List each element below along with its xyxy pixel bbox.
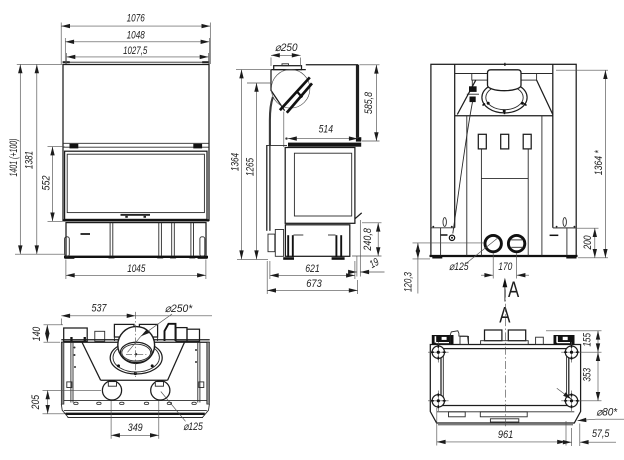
svg-text:1401 (+100): 1401 (+100)	[8, 138, 20, 176]
svg-text:A: A	[499, 303, 510, 328]
svg-text:1364: 1364	[229, 153, 241, 171]
svg-text:1045: 1045	[127, 263, 146, 275]
svg-text:⌀250*: ⌀250*	[165, 303, 193, 315]
svg-text:537: 537	[92, 303, 108, 315]
svg-text:349: 349	[128, 422, 143, 434]
svg-text:1265: 1265	[244, 157, 256, 176]
svg-text:120,3: 120,3	[402, 271, 414, 292]
svg-text:1048: 1048	[127, 30, 146, 42]
svg-text:1381: 1381	[24, 151, 36, 169]
svg-text:514: 514	[319, 123, 333, 135]
svg-text:170: 170	[498, 261, 513, 273]
svg-text:585,8: 585,8	[363, 91, 375, 114]
svg-text:⌀125: ⌀125	[183, 421, 203, 433]
svg-text:552: 552	[41, 176, 53, 191]
svg-text:140: 140	[31, 326, 43, 341]
svg-text:621: 621	[305, 263, 320, 275]
svg-text:240,8: 240,8	[362, 227, 374, 251]
svg-text:57,5: 57,5	[592, 428, 610, 440]
svg-text:961: 961	[498, 429, 514, 441]
svg-text:155: 155	[581, 332, 593, 346]
svg-text:1076: 1076	[127, 13, 146, 25]
svg-text:200: 200	[582, 235, 594, 250]
svg-text:⌀250: ⌀250	[275, 42, 298, 54]
svg-text:A: A	[508, 277, 519, 302]
svg-text:⌀125: ⌀125	[449, 261, 469, 273]
svg-text:⌀80*: ⌀80*	[596, 406, 618, 418]
svg-text:1364 *: 1364 *	[593, 150, 605, 176]
svg-text:1027,5: 1027,5	[123, 45, 148, 57]
svg-text:353: 353	[581, 367, 593, 381]
svg-text:205: 205	[30, 394, 42, 410]
svg-text:673: 673	[306, 278, 322, 290]
